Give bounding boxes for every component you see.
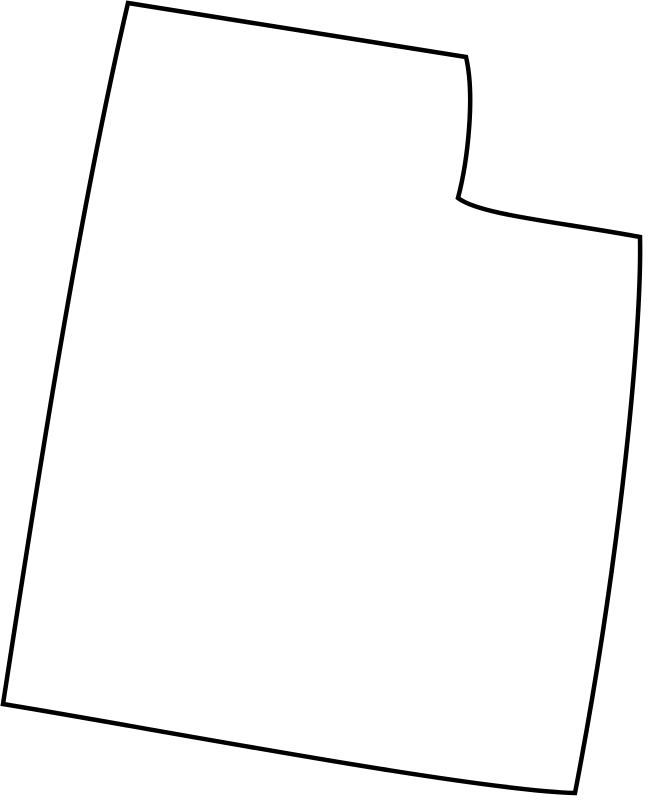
state-outline-map <box>0 0 649 800</box>
map-canvas <box>0 0 649 800</box>
utah-state-outline-shape <box>3 3 640 793</box>
